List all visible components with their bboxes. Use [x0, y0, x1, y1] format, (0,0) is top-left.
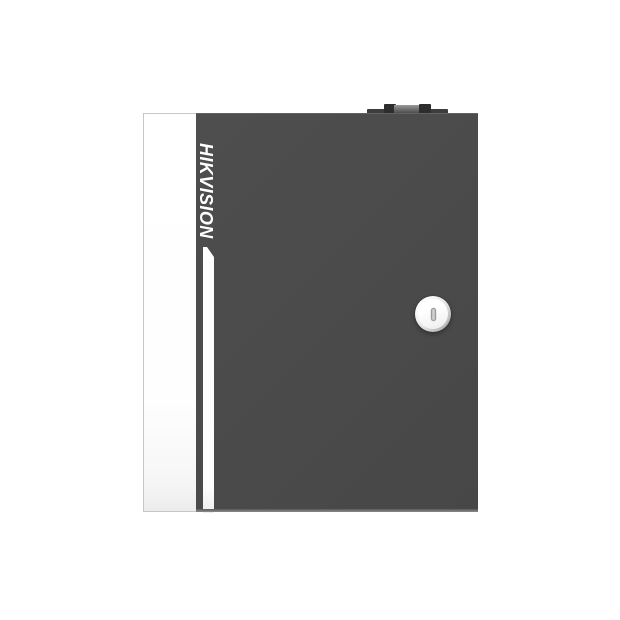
door-bottom-edge	[196, 509, 478, 512]
access-controller-cabinet: HIKVISION	[143, 113, 478, 512]
lock-face	[418, 299, 448, 329]
product-photo-canvas: HIKVISION	[0, 0, 620, 620]
door-accent-stripe	[203, 247, 214, 513]
hinge-knuckle-right	[419, 104, 431, 113]
cam-lock	[415, 296, 451, 332]
top-hinge	[367, 104, 448, 113]
keyhole-icon	[431, 308, 436, 321]
brand-logo: HIKVISION	[196, 143, 216, 239]
cabinet-side-panel	[143, 113, 196, 512]
cabinet-door: HIKVISION	[196, 113, 478, 512]
hinge-pin	[394, 105, 421, 113]
